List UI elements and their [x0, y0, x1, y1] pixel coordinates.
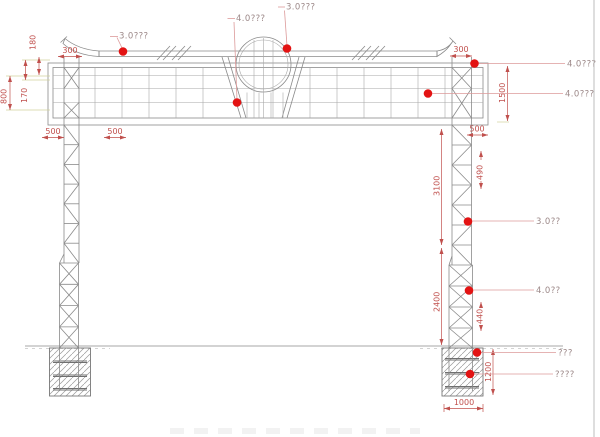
- callout-foundation-lower-label: ????: [555, 370, 575, 380]
- callout-emblem-side-label: 3.0???: [286, 3, 315, 13]
- callout-board-inner: 4.0???: [424, 89, 595, 99]
- marker-dot-emblem-base: [233, 98, 242, 107]
- callout-column-lower: 4.0??: [465, 286, 561, 296]
- dim-800-text: 800: [0, 89, 9, 104]
- callout-band-left: 3.0???: [110, 32, 148, 56]
- dim-300-left-text: 300: [62, 46, 77, 55]
- callout-board-inner-label: 4.0???: [565, 90, 594, 100]
- marker-dot-column-lower: [465, 286, 474, 295]
- callout-band-left-label: 3.0???: [119, 32, 148, 42]
- dim-3100-text: 3100: [433, 176, 442, 196]
- board-vertical-ribs: [95, 68, 445, 119]
- dim-440-text: 440: [476, 309, 485, 324]
- callout-emblem-base-label: 4.0???: [236, 14, 265, 24]
- dim-170-text: 170: [20, 88, 29, 103]
- callout-board-corner: 4.0???: [470, 59, 596, 69]
- dim-500-left-b: 500: [104, 127, 126, 140]
- section-break-marks: [157, 46, 385, 60]
- dim-800: 800: [0, 76, 12, 110]
- dim-2400: 2400: [433, 248, 444, 345]
- callout-board-corner-label: 4.0???: [567, 60, 596, 70]
- dim-180: 180: [29, 35, 42, 75]
- dim-2400-text: 2400: [433, 292, 442, 312]
- dim-3100: 3100: [433, 129, 444, 245]
- dim-1000: 1000: [444, 398, 483, 412]
- marker-dot-emblem-side: [283, 44, 292, 53]
- dim-1200: 1200: [484, 349, 495, 395]
- marker-dot-board-inner: [424, 89, 433, 98]
- drawing-canvas: 180 300 800 170 500: [0, 0, 600, 437]
- marker-dot-foundation-upper: [473, 348, 482, 357]
- dim-180-text: 180: [29, 35, 38, 50]
- structural-elevation-drawing: 180 300 800 170 500: [0, 0, 600, 437]
- callout-column-lower-label: 4.0??: [536, 286, 561, 296]
- dim-500-left-a: 500: [42, 127, 64, 140]
- callout-foundation-upper-label: ???: [558, 349, 573, 359]
- dim-1500-text: 1500: [498, 83, 507, 103]
- dim-500-right-text: 500: [469, 125, 484, 134]
- dim-300-right-text: 300: [453, 45, 468, 54]
- callout-foundation-upper: ???: [473, 348, 573, 358]
- marker-dot-band-left: [119, 47, 128, 56]
- sign-board: [48, 63, 488, 125]
- dim-300-right: 300: [450, 45, 472, 58]
- dim-500-left-b-text: 500: [107, 127, 122, 136]
- board-inner-frame: [53, 68, 483, 119]
- board-outer-frame: [48, 63, 488, 125]
- marker-dot-column-upper: [464, 217, 473, 226]
- marker-dot-foundation-lower: [466, 370, 475, 379]
- marker-dot-board-corner: [470, 59, 479, 68]
- dim-440: 440: [476, 302, 485, 331]
- dim-500-left-a-text: 500: [45, 127, 60, 136]
- dim-170: 170: [20, 60, 29, 103]
- callout-column-upper: 3.0??: [464, 217, 561, 227]
- dim-500-right: 500: [467, 125, 488, 138]
- dim-490: 490: [476, 151, 485, 189]
- faint-caption-remnant: [170, 428, 420, 434]
- callout-column-upper-label: 3.0??: [536, 217, 561, 227]
- dim-490-text: 490: [476, 165, 485, 180]
- left-column: [60, 57, 80, 348]
- dim-1200-text: 1200: [484, 362, 493, 382]
- top-band: [99, 46, 437, 60]
- left-foundation: [50, 348, 91, 396]
- dim-1000-text: 1000: [454, 398, 474, 407]
- right-column: [449, 57, 473, 348]
